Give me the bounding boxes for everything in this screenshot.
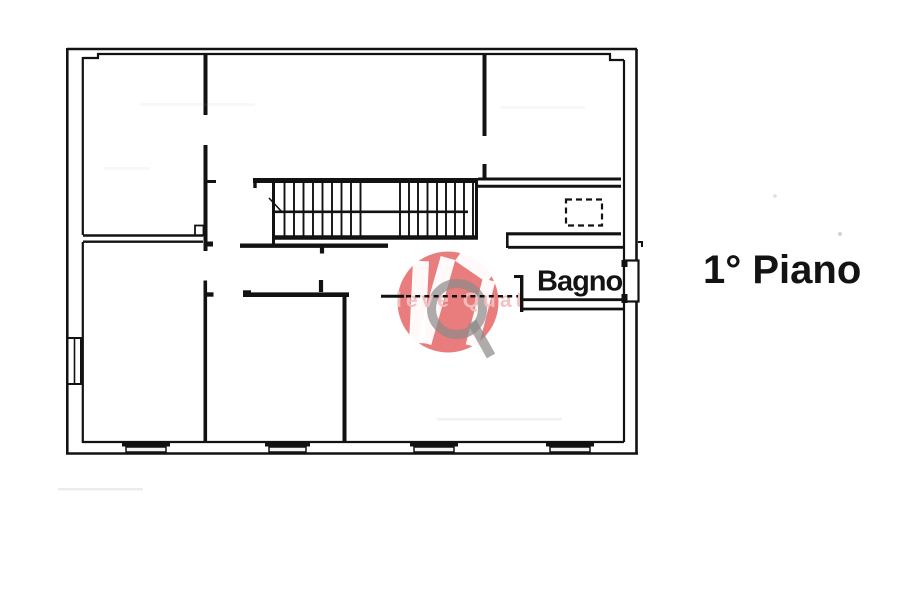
- svg-text:Bagno: Bagno: [537, 266, 623, 298]
- svg-text:leve Quat: leve Quat: [396, 289, 527, 312]
- svg-text:1° Piano: 1° Piano: [703, 248, 861, 292]
